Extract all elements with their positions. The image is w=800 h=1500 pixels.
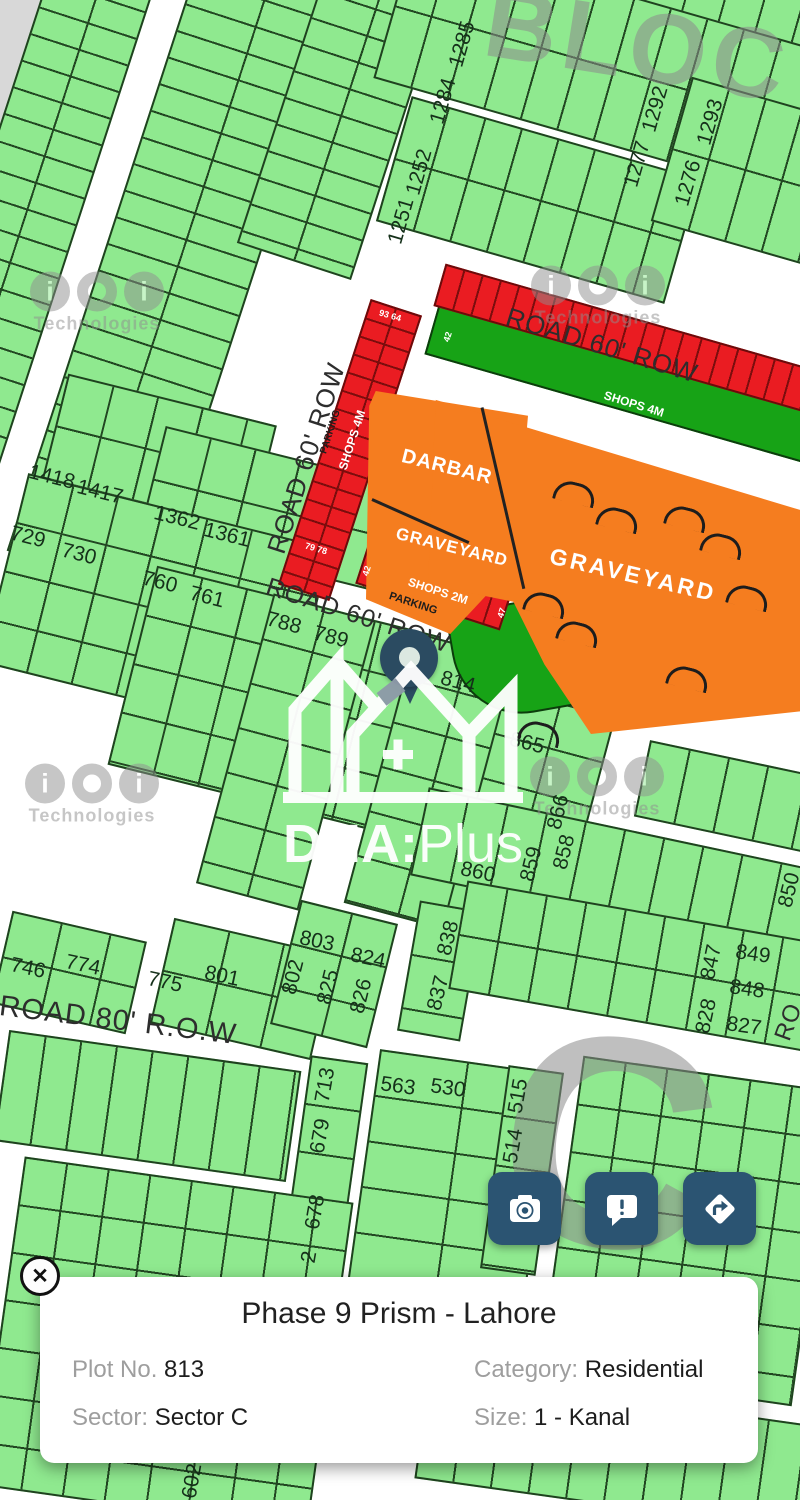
category-field: Category: Residential — [474, 1356, 726, 1384]
card-title: Phase 9 Prism - Lahore — [72, 1297, 726, 1331]
ioi-technologies-watermark: ioiTechnologies — [25, 764, 159, 827]
camera-button[interactable] — [488, 1172, 561, 1245]
plot-info-card: Phase 9 Prism - Lahore Plot No. 813 Cate… — [40, 1277, 758, 1463]
size-field: Size: 1 - Kanal — [474, 1404, 726, 1432]
close-card-button[interactable]: ✕ — [20, 1256, 60, 1296]
directions-icon — [700, 1189, 740, 1229]
plot-block — [0, 911, 147, 1035]
ioi-dot-icon: o — [72, 764, 112, 804]
directions-button[interactable] — [683, 1172, 756, 1245]
close-icon: ✕ — [31, 1264, 49, 1289]
ioi-dot-icon: i — [25, 764, 65, 804]
plot-block — [270, 900, 398, 1048]
sector-field: Sector: Sector C — [72, 1404, 248, 1432]
pin-hole-icon — [399, 647, 420, 668]
report-icon — [602, 1189, 642, 1229]
report-button[interactable] — [585, 1172, 658, 1245]
camera-icon — [505, 1189, 545, 1229]
map-canvas[interactable]: BLOCCioiTechnologiesioiTechnologiesioiTe… — [0, 0, 800, 1500]
plot-number-field: Plot No. 813 — [72, 1356, 204, 1384]
watermark-caption: Technologies — [25, 806, 159, 827]
